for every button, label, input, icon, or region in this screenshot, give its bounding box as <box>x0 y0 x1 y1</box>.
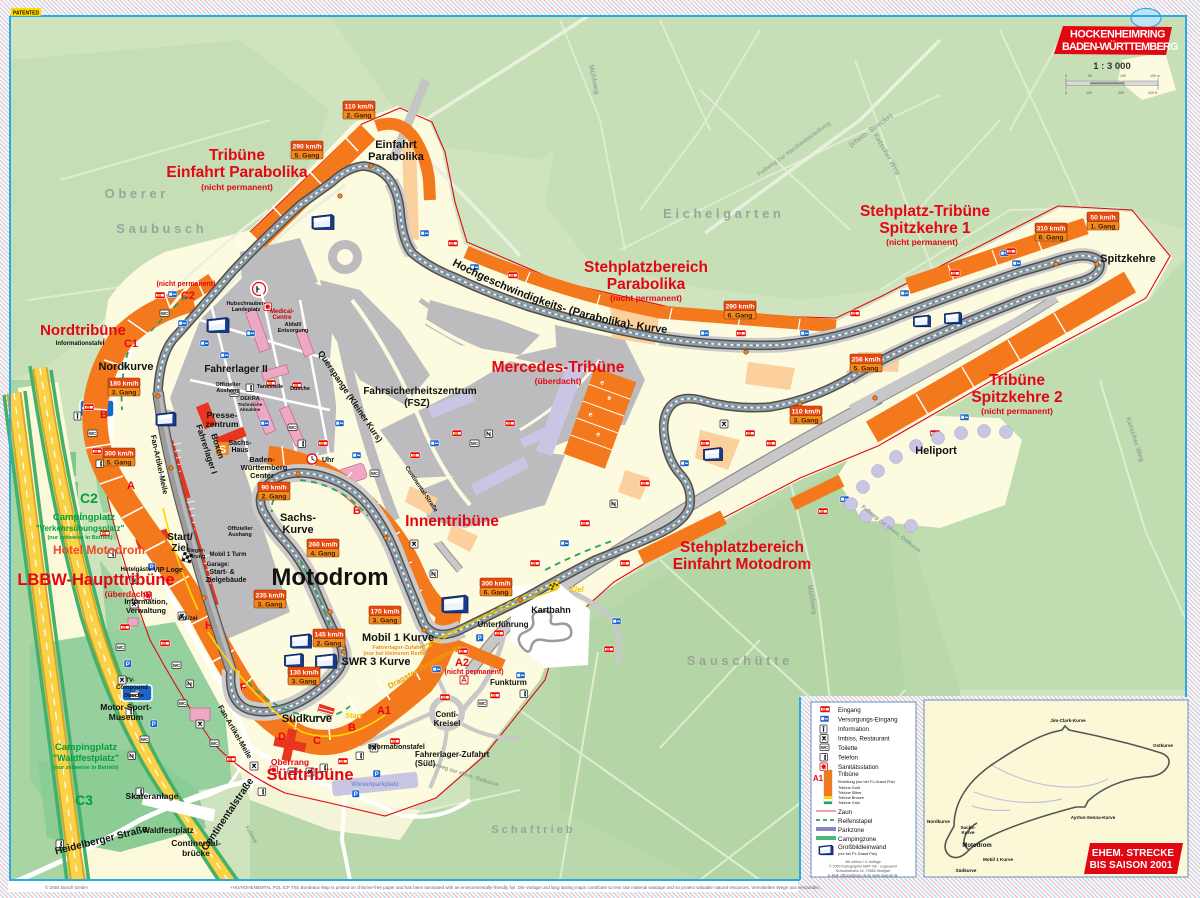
svg-text:© 2000 Kartographie MAP OK -: © 2000 Kartographie MAP OK - ungenannt <box>829 865 897 869</box>
svg-text:C3: C3 <box>75 792 93 808</box>
svg-text:Heliport: Heliport <box>915 445 957 457</box>
svg-text:Start: Start <box>345 711 363 720</box>
svg-text:Tribüne: Tribüne <box>838 771 859 778</box>
svg-text:150 m: 150 m <box>1150 74 1160 78</box>
svg-text:170 km/h: 170 km/h <box>370 608 399 615</box>
svg-text:WC: WC <box>211 741 219 746</box>
svg-text:Einfahrt: Einfahrt <box>375 139 417 151</box>
svg-text:Informationstafel: Informationstafel <box>56 341 105 347</box>
svg-text:Tribüne Grün: Tribüne Grün <box>838 801 860 805</box>
svg-text:180 km/h: 180 km/h <box>109 380 138 387</box>
svg-text:4. Gang: 4. Gang <box>311 550 336 557</box>
svg-text:Spitzkehre 1: Spitzkehre 1 <box>879 220 971 237</box>
svg-text:(nicht permanent): (nicht permanent) <box>981 406 1053 416</box>
svg-text:(nur bei F1-Grand Prix): (nur bei F1-Grand Prix) <box>838 852 878 856</box>
svg-text:(FSZ): (FSZ) <box>404 398 430 409</box>
svg-text:Südkurve: Südkurve <box>282 713 332 725</box>
svg-text:P: P <box>375 772 379 778</box>
svg-text:Dusche: Dusche <box>124 693 144 699</box>
svg-text:Ziel: Ziel <box>569 585 585 594</box>
svg-text:Parabolika: Parabolika <box>368 151 425 163</box>
svg-text:Sachs-: Sachs- <box>280 512 316 524</box>
svg-text:Stehplatz-Tribüne: Stehplatz-Tribüne <box>860 203 990 220</box>
svg-text:5. Gang: 5. Gang <box>295 152 320 159</box>
svg-text:Tankstelle: Tankstelle <box>257 384 284 390</box>
svg-text:235 km/h: 235 km/h <box>255 592 284 599</box>
svg-text:Sanitätsstation: Sanitätsstation <box>838 764 879 771</box>
svg-text:Nordtribüne: Nordtribüne <box>40 322 126 339</box>
svg-text:Abnahme: Abnahme <box>240 407 261 412</box>
svg-text:Motor-Sport-: Motor-Sport- <box>100 702 152 712</box>
svg-text:1 : 3 000: 1 : 3 000 <box>1093 61 1131 72</box>
svg-text:Fahrerlager-Zufahrt: Fahrerlager-Zufahrt <box>415 750 490 759</box>
svg-text:400 ft: 400 ft <box>1148 91 1157 95</box>
svg-text:Jim-Clark-Kurve: Jim-Clark-Kurve <box>1050 718 1086 723</box>
svg-text:(nicht permanent): (nicht permanent) <box>201 182 273 192</box>
svg-text:3. Gang: 3. Gang <box>794 417 819 424</box>
svg-text:Ziel: Ziel <box>171 543 188 554</box>
svg-text:Mobil 1 Kurve: Mobil 1 Kurve <box>983 857 1014 862</box>
svg-text:Tribüne Silber: Tribüne Silber <box>838 791 862 795</box>
svg-text:6. Gang: 6. Gang <box>728 312 753 319</box>
svg-text:Kurve: Kurve <box>961 830 974 835</box>
svg-text:Zielgebäude: Zielgebäude <box>206 577 247 584</box>
svg-text:Toilette: Toilette <box>838 745 858 752</box>
svg-text:WC: WC <box>89 431 97 436</box>
svg-text:Unterführung: Unterführung <box>477 620 528 629</box>
svg-text:Spitzkehre: Spitzkehre <box>1100 253 1156 265</box>
svg-text:Tribüne: Tribüne <box>989 372 1045 389</box>
svg-text:Südtribüne: Südtribüne <box>266 766 353 784</box>
svg-text:+HO/HOHENEMTAL FOL ICF This B: +HO/HOHENEMTAL FOL ICF This Bordeaux Map… <box>230 885 823 890</box>
svg-text:3. Gang: 3. Gang <box>258 601 283 608</box>
svg-text:E-Mail: office(at)map-ok.de: E-Mail: office(at)map-ok.de www.map-ok.d… <box>828 874 898 878</box>
svg-text:5. Gang: 5. Gang <box>854 365 879 372</box>
svg-text:C1: C1 <box>124 338 138 350</box>
svg-text:ehrung: ehrung <box>187 554 206 560</box>
svg-text:(nicht permanent): (nicht permanent) <box>156 281 215 288</box>
svg-text:Versorgungs-Eingang: Versorgungs-Eingang <box>838 717 898 724</box>
svg-text:O b e r e r: O b e r e r <box>105 186 166 201</box>
svg-text:A2: A2 <box>455 657 469 669</box>
svg-text:Innentribüne: Innentribüne <box>405 513 499 530</box>
svg-text:Schwabstraße 44, 70565 Stuttga: Schwabstraße 44, 70565 Stuttgart <box>836 869 891 873</box>
svg-text:Kreisel: Kreisel <box>434 719 461 728</box>
svg-text:130 km/h: 130 km/h <box>289 669 318 676</box>
svg-text:100: 100 <box>1086 91 1092 95</box>
svg-text:Kurve: Kurve <box>282 524 313 536</box>
svg-text:3. Gang: 3. Gang <box>292 678 317 685</box>
svg-text:6. Gang: 6. Gang <box>1039 234 1064 241</box>
svg-text:Einteilung (nur bei F1-Grand P: Einteilung (nur bei F1-Grand Prix) <box>838 780 896 784</box>
svg-text:Mobil 1 Kurve: Mobil 1 Kurve <box>362 632 434 644</box>
svg-text:SWR 3 Kurve: SWR 3 Kurve <box>341 656 410 668</box>
svg-text:WC: WC <box>479 701 487 706</box>
svg-text:Garage:: Garage: <box>207 562 230 568</box>
svg-text:2. Gang: 2. Gang <box>317 640 342 647</box>
svg-text:Aushang: Aushang <box>216 388 240 394</box>
svg-text:Haus: Haus <box>231 447 248 454</box>
svg-text:Mobil 1 Turm: Mobil 1 Turm <box>210 552 247 558</box>
svg-text:100: 100 <box>1120 74 1126 78</box>
svg-text:WC: WC <box>371 471 379 476</box>
svg-text:Reifenstapel: Reifenstapel <box>838 818 872 825</box>
svg-text:zentrum: zentrum <box>205 419 239 429</box>
svg-text:LBBW-Haupttribüne: LBBW-Haupttribüne <box>17 571 174 589</box>
svg-text:2. Gang: 2. Gang <box>262 493 287 500</box>
svg-text:Waldfestplatz: Waldfestplatz <box>142 826 193 835</box>
svg-text:Tribüne: Tribüne <box>209 147 265 164</box>
svg-text:3. Gang: 3. Gang <box>373 617 398 624</box>
svg-text:(nicht permanent): (nicht permanent) <box>444 669 503 676</box>
svg-text:(nur zeitweise in Betrieb): (nur zeitweise in Betrieb) <box>47 535 112 541</box>
svg-text:(nur zeitweise in Betrieb): (nur zeitweise in Betrieb) <box>53 765 118 771</box>
svg-text:VIP Loge: VIP Loge <box>153 567 183 574</box>
svg-text:"Waldfestplatz": "Waldfestplatz" <box>53 753 119 763</box>
svg-text:Start- &: Start- & <box>209 569 234 576</box>
svg-text:WC: WC <box>161 311 169 316</box>
svg-text:50: 50 <box>1088 74 1092 78</box>
svg-text:Hotelgäste: Hotelgäste <box>121 567 152 573</box>
svg-text:Imbiss, Restaurant: Imbiss, Restaurant <box>838 736 890 743</box>
svg-text:Campingzone: Campingzone <box>838 836 877 843</box>
svg-text:Landeplatz: Landeplatz <box>232 307 261 313</box>
svg-text:Aushang: Aushang <box>228 532 252 538</box>
svg-text:D: D <box>278 731 286 743</box>
svg-text:50 km/h: 50 km/h <box>1090 214 1115 221</box>
svg-text:E i c h e l g a r t e n: E i c h e l g a r t e n <box>663 206 781 221</box>
svg-text:145 km/h: 145 km/h <box>314 631 343 638</box>
svg-text:3. Gang: 3. Gang <box>112 389 137 396</box>
svg-text:Parkzone: Parkzone <box>838 827 865 834</box>
svg-text:Motodrom: Motodrom <box>962 843 991 849</box>
svg-text:300 km/h: 300 km/h <box>104 450 133 457</box>
svg-text:Verwaltung: Verwaltung <box>126 606 166 615</box>
svg-text:Campingplatz: Campingplatz <box>55 742 118 753</box>
svg-text:290 km/h: 290 km/h <box>292 143 321 150</box>
svg-text:Sachs-: Sachs- <box>229 440 253 447</box>
svg-text:4th edition / 4. Auflage: 4th edition / 4. Auflage <box>845 860 881 864</box>
svg-text:Information,: Information, <box>124 597 167 606</box>
svg-text:Polizei: Polizei <box>178 616 197 622</box>
svg-text:300 km/h: 300 km/h <box>481 580 510 587</box>
svg-text:310 km/h: 310 km/h <box>1036 225 1065 232</box>
svg-text:Ayrton-Senna-Kurve: Ayrton-Senna-Kurve <box>1071 815 1116 820</box>
svg-text:(nur bei kleineren Rennen): (nur bei kleineren Rennen) <box>363 651 433 657</box>
svg-text:(überdacht): (überdacht) <box>535 376 582 386</box>
svg-text:Entsorgung: Entsorgung <box>278 328 309 334</box>
svg-text:HOCKENHEIMRING: HOCKENHEIMRING <box>1070 29 1165 41</box>
svg-text:Fahrsicherheitszentrum: Fahrsicherheitszentrum <box>363 386 476 397</box>
svg-text:WC: WC <box>179 701 187 706</box>
svg-text:WC: WC <box>117 645 125 650</box>
svg-text:Einfahrt Parabolika: Einfahrt Parabolika <box>166 164 308 181</box>
svg-text:Compound: Compound <box>116 685 148 691</box>
svg-text:Oberrang: Oberrang <box>271 757 309 767</box>
svg-text:Skateranlage: Skateranlage <box>126 791 179 801</box>
svg-text:Tribüne Bronze: Tribüne Bronze <box>838 796 864 800</box>
svg-text:S a u b u s c h: S a u b u s c h <box>116 221 203 236</box>
svg-text:290 km/h: 290 km/h <box>725 303 754 310</box>
svg-text:0: 0 <box>1065 91 1067 95</box>
svg-text:Campingplatz: Campingplatz <box>53 512 116 523</box>
svg-text:256 km/h: 256 km/h <box>851 356 880 363</box>
svg-text:260 km/h: 260 km/h <box>308 541 337 548</box>
svg-text:Centre: Centre <box>272 315 292 321</box>
svg-text:Ostkurve: Ostkurve <box>1153 743 1173 748</box>
svg-text:Eingang: Eingang <box>838 707 861 714</box>
svg-text:Information: Information <box>838 726 870 733</box>
svg-text:Start/: Start/ <box>167 532 193 543</box>
svg-text:Nordkurve: Nordkurve <box>98 361 153 373</box>
svg-text:Fahrerlager II: Fahrerlager II <box>204 364 268 375</box>
svg-text:C: C <box>313 735 321 747</box>
svg-text:B: B <box>100 409 108 421</box>
svg-text:Dusche: Dusche <box>290 386 310 392</box>
svg-text:P: P <box>152 722 156 728</box>
svg-text:"Verkehrsübungsplatz": "Verkehrsübungsplatz" <box>36 524 125 533</box>
svg-text:Südkurve: Südkurve <box>956 868 977 873</box>
svg-text:P: P <box>354 792 358 798</box>
svg-text:A1: A1 <box>813 774 824 783</box>
svg-text:C2: C2 <box>80 490 98 506</box>
svg-text:Stehplatzbereich: Stehplatzbereich <box>680 539 804 556</box>
svg-text:Telefon: Telefon <box>838 755 859 762</box>
svg-text:0: 0 <box>1065 74 1067 78</box>
svg-text:S c h a f t r i e b: S c h a f t r i e b <box>491 824 573 836</box>
svg-text:Parabolika: Parabolika <box>607 276 686 293</box>
svg-text:Center: Center <box>250 471 274 480</box>
svg-text:Einfahrt Motodrom: Einfahrt Motodrom <box>673 556 812 573</box>
svg-text:S a u s c h ü t t e: S a u s c h ü t t e <box>687 653 790 668</box>
svg-text:PATENTED: PATENTED <box>13 11 40 17</box>
svg-text:TV-: TV- <box>125 678 134 684</box>
svg-text:Funkturm: Funkturm <box>490 678 527 687</box>
svg-text:Kartbahn: Kartbahn <box>531 605 571 615</box>
svg-text:Stehplatzbereich: Stehplatzbereich <box>584 259 708 276</box>
svg-text:Wiesenparkplatz: Wiesenparkplatz <box>351 782 398 788</box>
svg-text:(nicht permanent): (nicht permanent) <box>610 293 682 303</box>
svg-text:WC: WC <box>821 745 829 750</box>
svg-text:110 km/h: 110 km/h <box>345 103 374 110</box>
svg-text:110 km/h: 110 km/h <box>792 408 821 415</box>
svg-text:1. Gang: 1. Gang <box>1091 223 1116 230</box>
svg-text:P: P <box>126 662 130 668</box>
svg-text:C2: C2 <box>181 290 195 302</box>
svg-text:WC: WC <box>173 663 181 668</box>
svg-text:Museum: Museum <box>109 712 144 722</box>
svg-text:Hotel Motodrom: Hotel Motodrom <box>53 543 145 557</box>
svg-text:2. Gang: 2. Gang <box>347 112 372 119</box>
svg-text:Großbildleinwand: Großbildleinwand <box>838 844 887 851</box>
svg-text:Uhr: Uhr <box>322 457 334 464</box>
svg-text:90 km/h: 90 km/h <box>261 484 286 491</box>
svg-text:WC: WC <box>141 737 149 742</box>
svg-text:Nordkurve: Nordkurve <box>927 819 950 824</box>
svg-text:Motodrom: Motodrom <box>271 564 388 591</box>
svg-text:© 2004 Bosch GmbH: © 2004 Bosch GmbH <box>45 884 88 890</box>
svg-text:5. Gang: 5. Gang <box>107 459 132 466</box>
svg-text:A: A <box>127 480 135 492</box>
svg-text:Spitzkehre 2: Spitzkehre 2 <box>971 389 1062 406</box>
svg-text:EHEM. STRECKE: EHEM. STRECKE <box>1092 848 1175 859</box>
svg-text:WC: WC <box>289 425 297 430</box>
svg-text:Tribüne Gold: Tribüne Gold <box>838 786 860 790</box>
svg-text:Zaun: Zaun <box>838 809 853 816</box>
svg-text:(nicht permanent): (nicht permanent) <box>886 237 958 247</box>
svg-text:Mercedes-Tribüne: Mercedes-Tribüne <box>492 359 625 376</box>
svg-text:WC: WC <box>471 441 479 446</box>
svg-text:P: P <box>478 636 482 642</box>
svg-text:BIS SAISON 2001: BIS SAISON 2001 <box>1090 860 1173 871</box>
svg-text:Conti-: Conti- <box>435 710 458 719</box>
svg-text:6. Gang: 6. Gang <box>484 589 509 596</box>
svg-text:BADEN-WÜRTTEMBERG: BADEN-WÜRTTEMBERG <box>1062 40 1178 53</box>
svg-text:200: 200 <box>1118 91 1124 95</box>
